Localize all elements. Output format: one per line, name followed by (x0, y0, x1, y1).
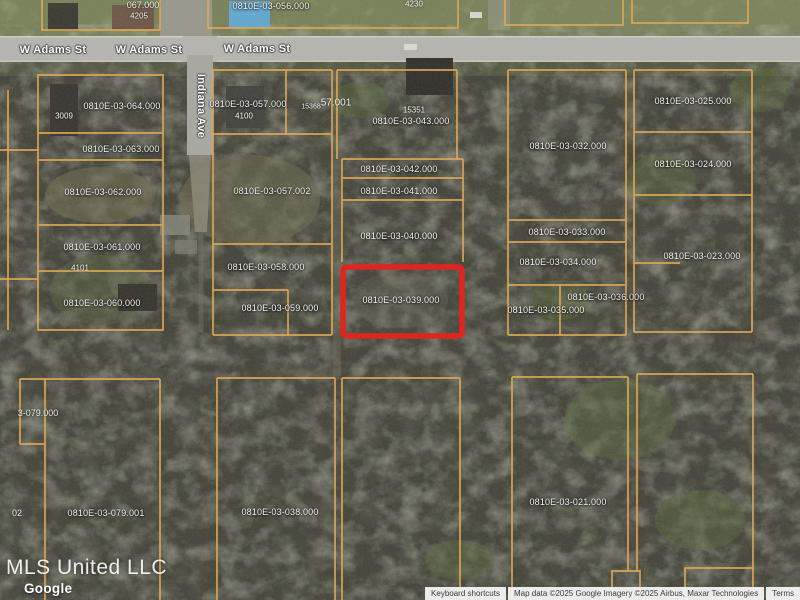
map-canvas[interactable]: W Adams St W Adams St W Adams St Indiana… (0, 0, 800, 600)
map-attribution-bar: Keyboard shortcuts Map data ©2025 Google… (425, 587, 800, 600)
keyboard-shortcuts-button[interactable]: Keyboard shortcuts (425, 587, 506, 600)
mls-watermark: MLS United LLC (6, 556, 167, 580)
map-data-attribution: Map data ©2025 Google Imagery ©2025 Airb… (508, 587, 764, 600)
terms-link[interactable]: Terms (766, 587, 800, 600)
aerial-imagery (0, 0, 800, 600)
google-logo[interactable]: Google (24, 581, 72, 596)
